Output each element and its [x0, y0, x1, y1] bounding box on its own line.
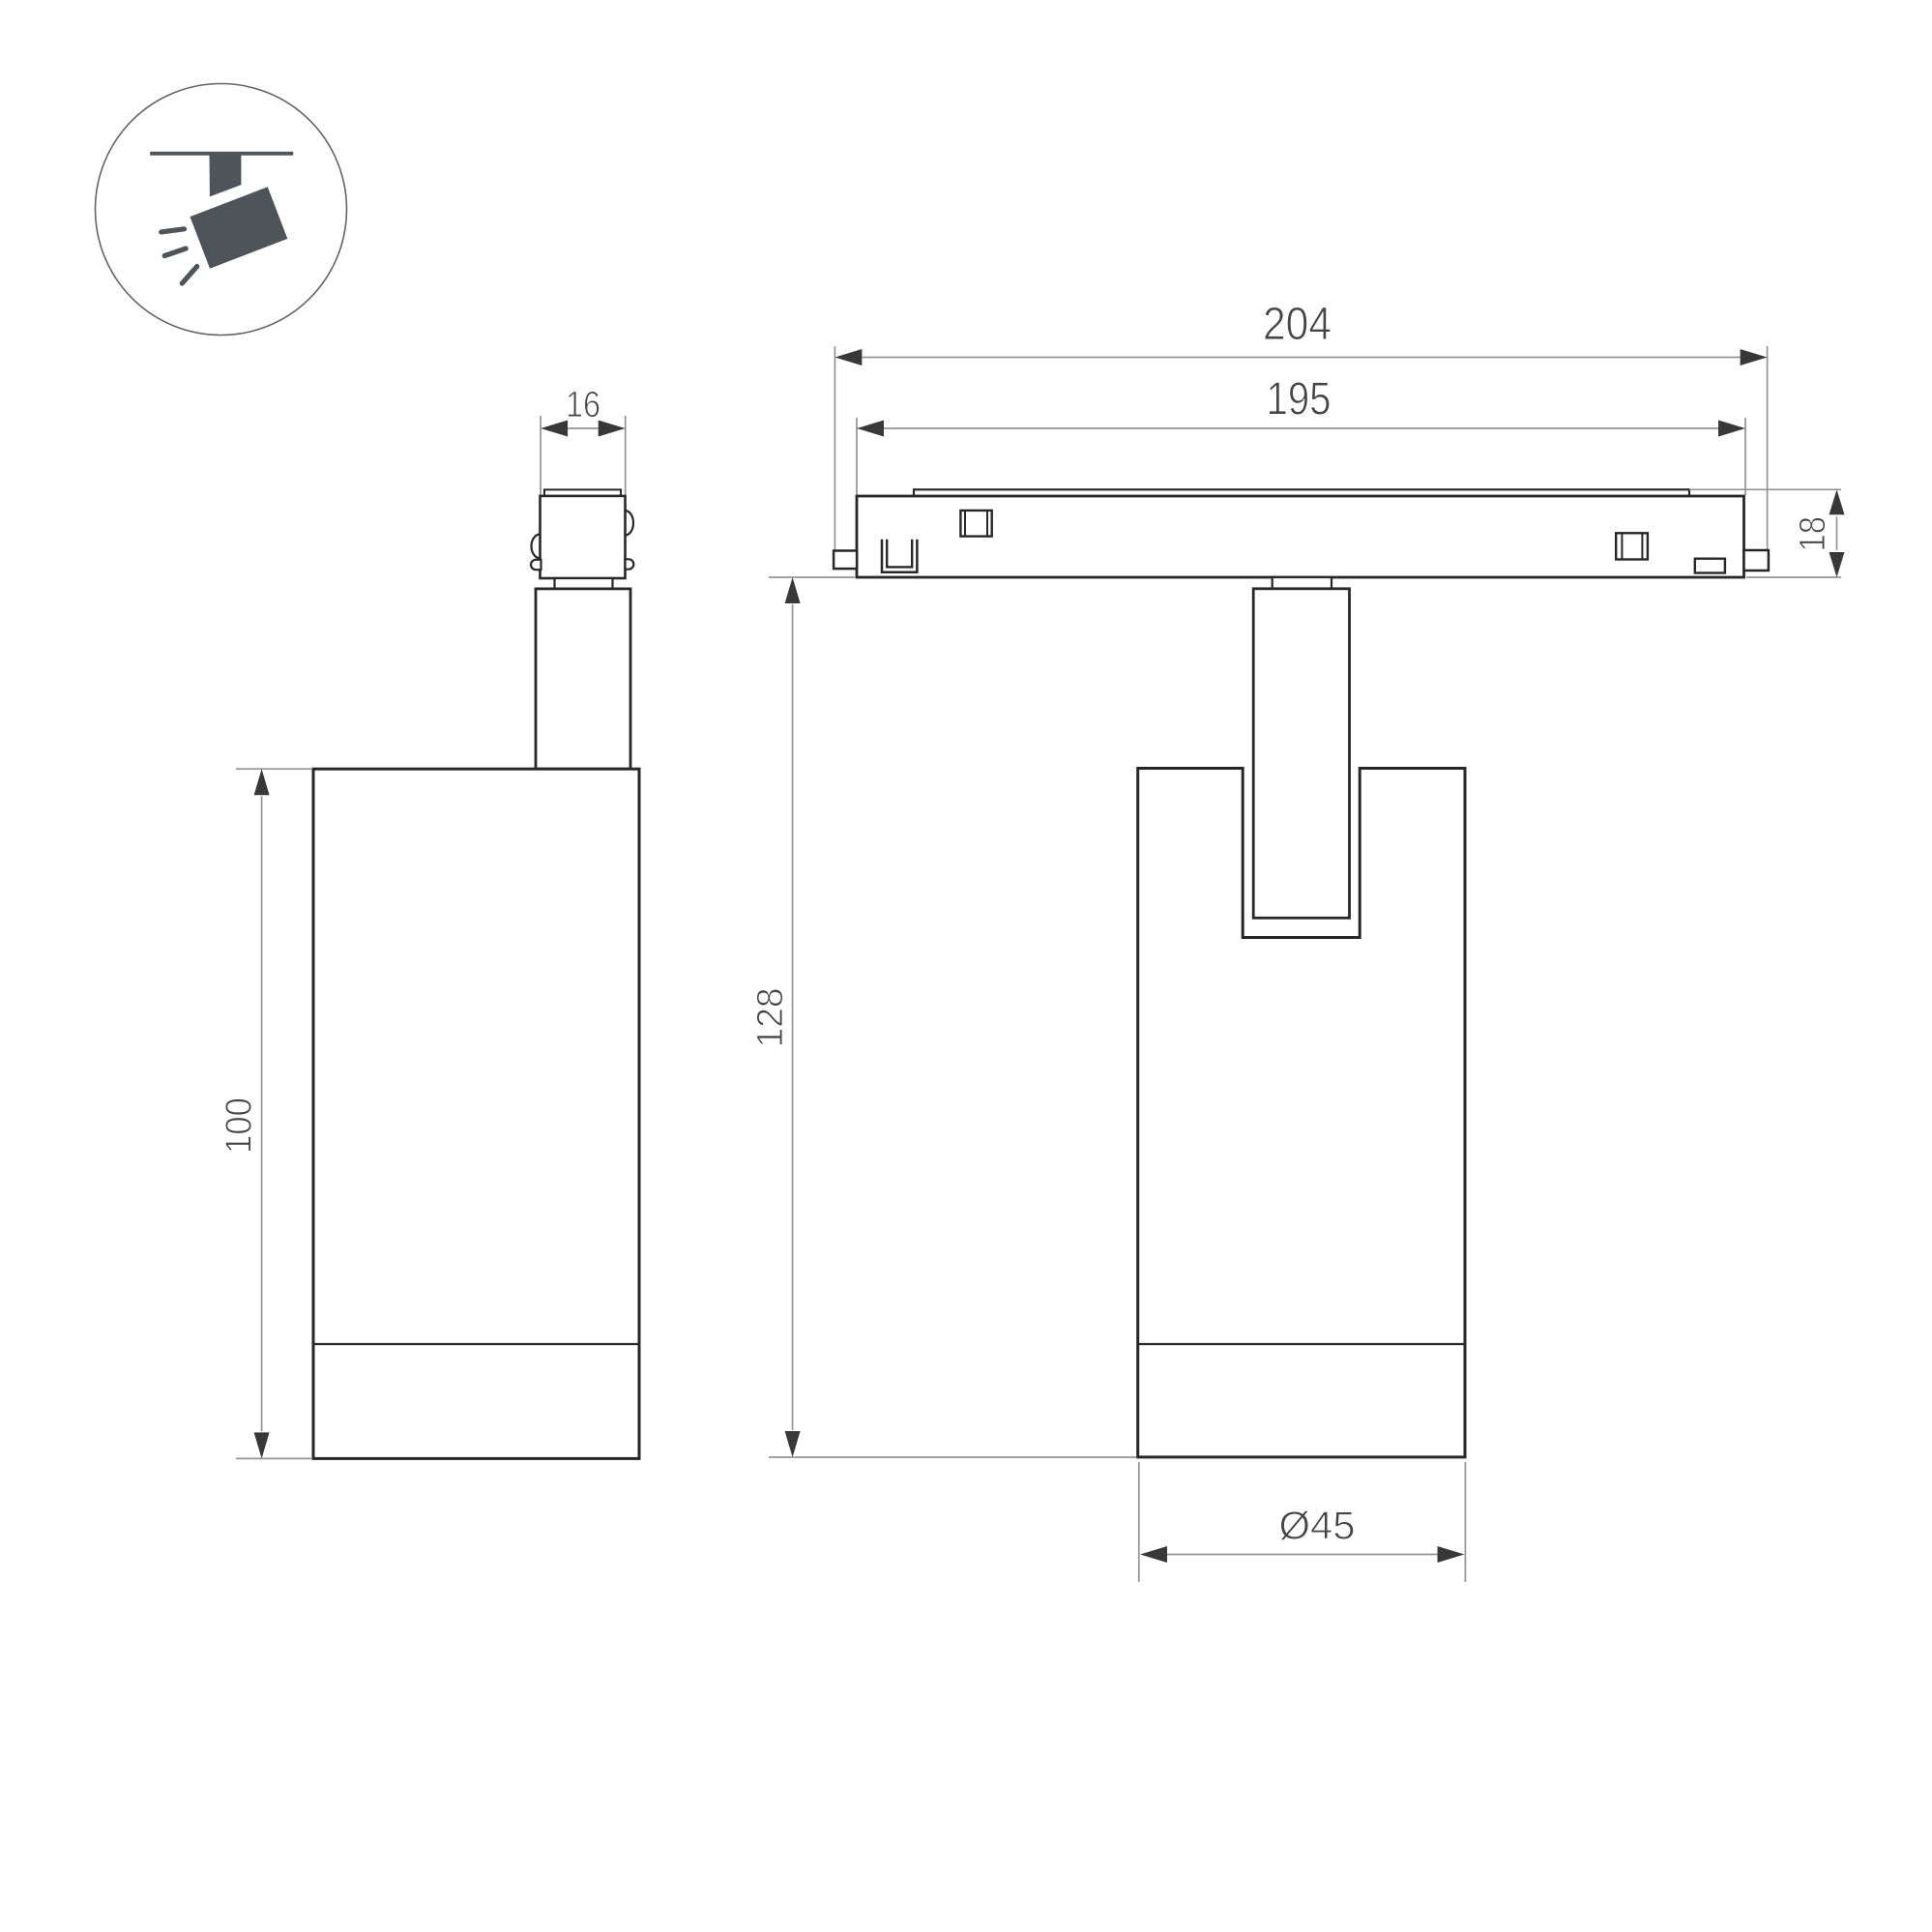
svg-text:16: 16	[566, 384, 600, 425]
svg-text:195: 195	[1267, 374, 1332, 425]
svg-text:100: 100	[219, 1098, 260, 1154]
svg-text:128: 128	[749, 987, 791, 1047]
svg-text:204: 204	[1263, 299, 1332, 350]
svg-text:18: 18	[1792, 516, 1833, 552]
svg-text:Ø45: Ø45	[1279, 1504, 1356, 1548]
